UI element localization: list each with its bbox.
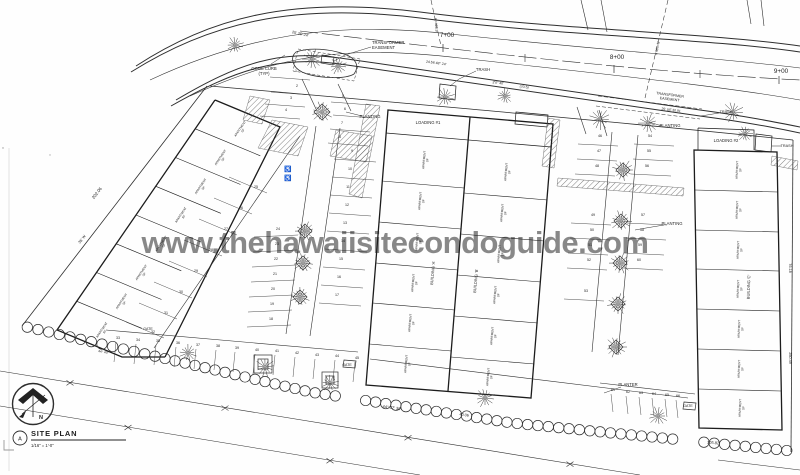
rock-wall-circle xyxy=(522,419,532,429)
loading-apron xyxy=(577,107,607,136)
unit-label: APARTMENTSF xyxy=(735,161,743,180)
annotation-label: GATE xyxy=(143,327,153,331)
rock-wall-circle xyxy=(370,397,380,407)
rock-wall-circle xyxy=(482,414,492,424)
svg-text:BUILDING 'C': BUILDING 'C' xyxy=(746,274,752,299)
unit-label: APARTMENTSF xyxy=(503,162,512,181)
tree-icon xyxy=(638,114,656,133)
svg-text:♿: ♿ xyxy=(284,174,292,182)
svg-text:PLANTING: PLANTING xyxy=(660,123,681,128)
rock-wall-circle xyxy=(411,403,421,413)
rock-wall-circle xyxy=(595,427,605,437)
stall-number: 11 xyxy=(346,185,350,189)
rock-wall-circle xyxy=(180,358,190,368)
tree-icon xyxy=(649,407,667,424)
rock-wall-circle xyxy=(502,417,512,427)
stall-divider-line xyxy=(611,394,613,412)
rock-wall-circle xyxy=(636,431,646,441)
stall-number: 38 xyxy=(216,344,220,348)
stall-number: 2 xyxy=(296,84,298,88)
stall-number: 8 xyxy=(339,135,341,139)
stall-divider-line xyxy=(251,280,295,282)
annotation-label: BUILDING 'B' xyxy=(472,268,479,293)
stall-number: 63 xyxy=(639,391,643,395)
stall-divider-line xyxy=(134,344,136,364)
stall-number: 18 xyxy=(269,317,273,321)
annotation-label: TRASH xyxy=(476,67,490,72)
svg-text:♿: ♿ xyxy=(284,165,292,173)
rock-wall-circle xyxy=(401,402,411,412)
stall-number: 44 xyxy=(335,354,339,358)
stall-divider-line xyxy=(330,195,372,198)
stall-divider-line xyxy=(248,310,292,312)
rock-wall-circle xyxy=(730,440,740,450)
title-block: N A SITE PLAN 1/16" = 1'-0" xyxy=(13,384,127,449)
station-label: 9+00 xyxy=(774,68,789,75)
annotation-label: CONC CURB(TYP) xyxy=(251,66,277,76)
stall-divider-line xyxy=(634,144,674,146)
unit-label: APARTMENTSF xyxy=(738,399,746,418)
watermark: www.thehawaiisitecondoguide.com xyxy=(141,225,649,260)
unit-label: APARTMENTSF xyxy=(489,326,498,345)
annotation-label: 44° 27' 30" xyxy=(382,404,402,412)
svg-text:105.82: 105.82 xyxy=(707,440,720,446)
road-stations: 7+008+009+00 xyxy=(440,32,789,84)
stall-number: 9 xyxy=(351,149,353,153)
stall-divider-line xyxy=(321,285,363,288)
rock-wall-circle xyxy=(97,339,107,349)
stall-number: 12 xyxy=(345,203,349,207)
rock-wall-circle xyxy=(160,353,170,363)
unit-label: APARTMENTSF xyxy=(95,321,111,340)
stall-number: 35 xyxy=(156,339,160,343)
tree-icon xyxy=(228,37,244,52)
unit-label: APARTMENTSF xyxy=(135,264,151,283)
rock-wall-circle xyxy=(118,344,128,354)
annotation-label: TRASH xyxy=(781,144,794,148)
unit-label: APARTMENTSF xyxy=(115,292,131,311)
stall-number: 20 xyxy=(271,287,275,291)
stall-number: 39 xyxy=(235,346,239,350)
annotation-label: PLANTER xyxy=(618,382,637,387)
rock-wall-circle xyxy=(441,408,451,418)
rock-wall-circle xyxy=(33,324,43,334)
svg-text:TRANSFORMEREASEMENT: TRANSFORMEREASEMENT xyxy=(372,40,404,50)
stall-divider-line xyxy=(252,265,296,267)
rock-wall-circle xyxy=(605,428,615,438)
stall-divider-line xyxy=(265,104,305,107)
svg-text:76.18: 76.18 xyxy=(788,263,792,273)
rock-wall-circle xyxy=(761,443,771,453)
rock-wall-circle xyxy=(230,370,240,380)
svg-text:TRASH: TRASH xyxy=(720,110,733,114)
stall-number: 53 xyxy=(584,289,588,293)
rock-wall-circle xyxy=(240,372,250,382)
stall-number: 36 xyxy=(176,341,180,345)
stall-number: 33 xyxy=(116,336,120,340)
stall-divider-line xyxy=(639,397,641,415)
leader-lines xyxy=(271,47,781,393)
svg-text:GATE: GATE xyxy=(342,363,352,367)
svg-text:CONC CURB(TYP): CONC CURB(TYP) xyxy=(251,66,277,76)
unit-label: APARTMENTSF xyxy=(421,150,430,169)
tree-icon xyxy=(180,344,197,360)
svg-text:202.06: 202.06 xyxy=(91,186,104,200)
stall-divider-line xyxy=(214,350,216,370)
rock-wall-circle xyxy=(210,365,220,375)
unit-label: APARTMENTSF xyxy=(214,149,230,168)
rock-wall-circle xyxy=(782,445,792,455)
rock-wall-circle xyxy=(554,423,564,433)
rock-wall-circle xyxy=(360,395,370,405)
tree-icon xyxy=(331,58,347,74)
scanned-site-plan-page: 1234567891011121314151617242322212019182… xyxy=(0,0,800,475)
rock-wall-circle xyxy=(190,360,200,370)
svg-text:TRANSFORMEREASEMENT: TRANSFORMEREASEMENT xyxy=(656,91,685,103)
stall-number: 4 xyxy=(285,108,287,112)
rock-wall-circle xyxy=(533,420,543,430)
stall-divider-line xyxy=(273,355,275,375)
unit-label: APARTMENTSF xyxy=(735,201,743,220)
stall-number: 48 xyxy=(595,164,599,168)
rock-wall-circle xyxy=(421,405,431,415)
stall-number: 41 xyxy=(275,349,279,353)
north-label: N xyxy=(39,415,43,421)
rock-wall-circle xyxy=(492,416,502,426)
svg-text:24.56 48° 24': 24.56 48° 24' xyxy=(426,60,447,67)
tree-icon xyxy=(608,338,628,358)
rock-wall-circle xyxy=(250,374,260,384)
stall-divider-line xyxy=(631,174,671,176)
rock-wall-circle xyxy=(260,376,270,386)
svg-text:44° 40': 44° 40' xyxy=(98,349,109,355)
stall-divider-line xyxy=(665,399,667,417)
stall-number: 54 xyxy=(648,134,652,138)
tree-icon xyxy=(477,389,494,407)
stall-number: 3 xyxy=(290,96,292,100)
rock-wall-circle xyxy=(512,418,522,428)
drawing-scale: 1/16" = 1'-0" xyxy=(31,443,54,448)
stall-divider-line xyxy=(564,299,604,301)
annotation-label: 2'0" 40' xyxy=(492,80,504,85)
rock-wall-circle xyxy=(290,383,300,393)
stall-number: 42 xyxy=(295,351,299,355)
stall-divider-line xyxy=(319,303,361,306)
unit-label: APARTMENTSF xyxy=(194,177,210,196)
stall-number: 16 xyxy=(337,275,341,279)
rock-wall-circle xyxy=(771,444,781,454)
stall-number: 40 xyxy=(255,348,259,352)
annotation-label: GATE xyxy=(342,363,352,367)
svg-text:BUILDING 'A': BUILDING 'A' xyxy=(429,260,436,285)
annotation-label: ♿ xyxy=(284,174,292,182)
stall-divider-line xyxy=(676,400,678,418)
rock-wall-circle xyxy=(44,327,54,337)
svg-text:2'0" 40': 2'0" 40' xyxy=(492,80,504,85)
stall-divider-line xyxy=(323,267,365,270)
annotation-label: 105.82 xyxy=(707,440,720,446)
svg-text:PLANTING: PLANTING xyxy=(662,221,683,226)
stall-number: 56 xyxy=(645,164,649,168)
stall-divider-line xyxy=(329,213,371,216)
annotation-label: R=428.9 xyxy=(433,18,438,32)
annotation-label: LOADING #1 xyxy=(416,120,441,125)
stall-number: 55 xyxy=(647,149,651,153)
stall-divider-line xyxy=(260,116,300,119)
rock-wall-circle xyxy=(626,430,636,440)
stall-divider-line xyxy=(169,261,207,277)
rock-wall-circle xyxy=(431,406,441,416)
stall-number: 10 xyxy=(348,167,352,171)
stall-divider-line xyxy=(633,159,673,161)
rock-wall-circle xyxy=(320,389,330,399)
annotation-label: 250.49 xyxy=(788,352,792,364)
aisle-edges xyxy=(106,136,695,398)
annotation-label: PLANTING xyxy=(360,114,381,119)
stall-number: 45 xyxy=(355,356,359,360)
unit-label: APARTMENTSF xyxy=(736,280,744,299)
stall-divider-line xyxy=(174,347,176,367)
rock-wall-circle xyxy=(300,386,310,396)
unit-label: APARTMENTSF xyxy=(485,367,494,386)
annotation-label: LOADING #2 xyxy=(714,138,739,143)
annotation-label: 25' 25' 24' xyxy=(292,30,310,38)
svg-text:R=505.0: R=505.0 xyxy=(654,41,660,55)
stall-number: 57 xyxy=(641,213,645,217)
stall-number: 62 xyxy=(626,390,630,394)
stall-divider-line xyxy=(270,77,310,80)
tree-icon xyxy=(498,88,511,103)
stall-divider-line xyxy=(114,342,116,362)
unit-label: APARTMENTSF xyxy=(410,273,419,292)
svg-text:R=428.9: R=428.9 xyxy=(433,18,438,32)
stall-number: 34 xyxy=(136,338,140,342)
annotation-label: BUILDING 'A' xyxy=(429,260,436,285)
scan-speck xyxy=(2,147,3,148)
stall-divider-line xyxy=(353,362,355,382)
unit-label: APARTMENTSF xyxy=(499,203,508,222)
svg-text:BUILDING 'B': BUILDING 'B' xyxy=(472,268,479,293)
unit-label: APARTMENTSF xyxy=(233,120,249,139)
annotation-label: PLANTING xyxy=(662,221,683,226)
stall-divider-line xyxy=(139,303,177,319)
stall-number: 17 xyxy=(335,293,339,297)
rock-wall-circle xyxy=(270,379,280,389)
rock-wall-circle xyxy=(108,341,118,351)
stall-divider-line xyxy=(194,349,196,369)
unit-label: APARTMENTSF xyxy=(736,241,744,260)
planting-hatch xyxy=(243,96,798,198)
annotation-label: 24.56 48° 24' xyxy=(426,60,447,67)
stall-divider-line xyxy=(271,92,311,95)
annotation-label: ♿ xyxy=(284,165,292,173)
unit-label: APARTMENTSF xyxy=(174,206,190,225)
annotation-label: TRANSFORMEREASEMENT xyxy=(372,40,404,50)
stall-number: 65 xyxy=(665,393,669,397)
unit-label: APARTMENTSF xyxy=(492,285,501,304)
tree-icon xyxy=(612,161,633,181)
rock-wall-circle xyxy=(740,441,750,451)
fence-lines xyxy=(0,371,640,475)
stall-number: 7 xyxy=(341,121,343,125)
stall-number: 43 xyxy=(315,353,319,357)
stall-divider-line xyxy=(247,325,291,327)
stall-divider-line xyxy=(154,282,192,298)
annotation-label: 44° 40' xyxy=(98,349,109,355)
svg-text:(70.5): (70.5) xyxy=(519,84,529,89)
svg-text:25' 25' 24': 25' 25' 24' xyxy=(292,30,310,38)
stall-divider-line xyxy=(623,268,663,270)
stall-divider-line xyxy=(331,102,371,105)
stall-number: 1 xyxy=(295,69,297,73)
rock-wall-circle xyxy=(616,429,626,439)
annotation-label: GATE xyxy=(683,404,693,408)
stall-number: 37 xyxy=(196,343,200,347)
tree-icon xyxy=(257,359,274,377)
sheet-title: SITE PLAN xyxy=(31,429,77,438)
annotation-label: R=505.0 xyxy=(654,41,660,55)
rock-wall-circle xyxy=(585,426,595,436)
stall-divider-line xyxy=(578,144,618,146)
unit-label: APARTMENTSF xyxy=(407,313,416,332)
stall-number: 61 xyxy=(611,388,615,392)
stall-divider-line xyxy=(249,295,293,297)
unit-label: APARTMENTSF xyxy=(417,191,426,210)
stall-divider-line xyxy=(313,359,315,379)
stall-divider-line xyxy=(293,357,295,377)
svg-text:TRASH: TRASH xyxy=(476,67,490,72)
rock-wall-circle xyxy=(543,421,553,431)
rock-wall-circle xyxy=(657,433,667,443)
rock-wall-circle xyxy=(280,381,290,391)
stall-number: 21 xyxy=(273,272,277,276)
annotation-label: 202.06 xyxy=(91,186,104,200)
unit-label: APARTMENTSF xyxy=(403,354,412,373)
rock-wall-circle xyxy=(220,367,230,377)
rock-wall-circle xyxy=(129,346,139,356)
north-arrow-icon: N xyxy=(13,384,54,425)
unit-label: APARTMENTSF xyxy=(737,360,745,379)
rock-wall-circle xyxy=(471,412,481,422)
stall-divider-line xyxy=(233,352,235,372)
rock-wall-circle xyxy=(751,442,761,452)
stall-number: 47 xyxy=(597,149,601,153)
svg-text:GATE: GATE xyxy=(143,327,153,331)
station-label: 8+00 xyxy=(610,54,625,61)
stall-divider-line xyxy=(626,396,628,414)
stall-number: 19 xyxy=(270,302,274,306)
svg-text:PLANTER: PLANTER xyxy=(618,382,637,387)
rock-wall-circle xyxy=(86,337,96,347)
svg-text:TRASH: TRASH xyxy=(781,144,794,148)
annotation-label: BUILDING 'C' xyxy=(746,274,752,299)
stall-number: 66 xyxy=(676,394,680,398)
stall-divider-line xyxy=(577,159,617,161)
annotation-label: PLANTING xyxy=(660,123,681,128)
stall-number: 5 xyxy=(342,94,344,98)
stall-number: 64 xyxy=(652,392,656,396)
annotation-label: TRANSFORMEREASEMENT xyxy=(656,91,685,103)
svg-text:LOADING #1: LOADING #1 xyxy=(416,120,441,125)
tree-icon xyxy=(302,50,320,69)
rock-wall-circle xyxy=(719,439,729,449)
unit-label: APARTMENTSF xyxy=(737,320,745,339)
driveway-crossings xyxy=(581,0,764,32)
site-plan-drawing: 1234567891011121314151617242322212019182… xyxy=(0,0,800,475)
right-property-line xyxy=(791,140,793,452)
rock-wall-circle xyxy=(22,322,32,332)
detail-letter: A xyxy=(18,437,22,443)
annotation-label: (70.5) xyxy=(519,84,529,89)
fence-line xyxy=(0,371,640,475)
rock-wall-circle xyxy=(310,388,320,398)
scan-speck xyxy=(49,154,50,155)
stall-divider-line xyxy=(652,398,654,416)
stall-divider-line xyxy=(214,198,252,214)
road-lines xyxy=(131,0,800,133)
svg-text:250.49: 250.49 xyxy=(788,352,792,364)
rock-wall-circle xyxy=(647,432,657,442)
rock-wall-circle xyxy=(564,424,574,434)
svg-text:PLANTING: PLANTING xyxy=(360,114,381,119)
loading-box xyxy=(515,112,548,127)
radial-lines xyxy=(431,0,668,98)
annotation-label: TRASH xyxy=(720,110,733,114)
svg-text:44° 27' 30": 44° 27' 30" xyxy=(382,404,402,412)
tree-icon xyxy=(738,127,753,141)
stall-number: 49 xyxy=(591,213,595,217)
rock-wall-circle xyxy=(668,434,678,444)
rock-wall-circle xyxy=(200,363,210,373)
annotation-label: 76.18 xyxy=(788,263,792,273)
stall-divider-line xyxy=(575,174,615,176)
tree-icon xyxy=(291,287,310,305)
stall-number: 6 xyxy=(344,107,346,111)
stall-number: 46 xyxy=(598,134,602,138)
svg-text:GATE: GATE xyxy=(683,404,693,408)
rock-wall-circle xyxy=(330,391,340,401)
rock-wall-circle xyxy=(574,425,584,435)
station-label: 7+00 xyxy=(440,32,455,39)
stall-divider-line xyxy=(567,268,607,270)
svg-text:LOADING #2: LOADING #2 xyxy=(714,138,739,143)
